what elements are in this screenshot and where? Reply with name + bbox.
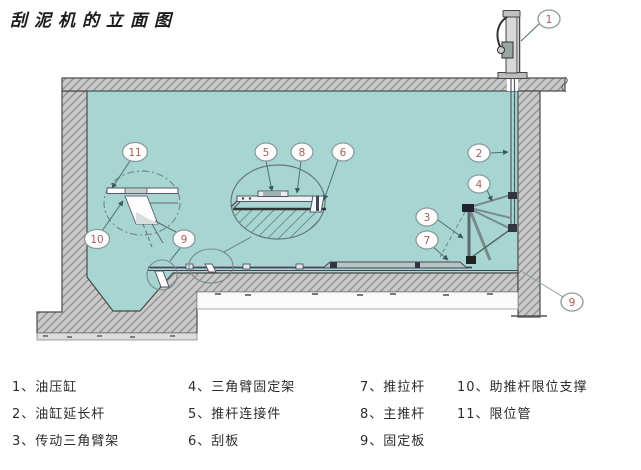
top-slab <box>62 78 565 91</box>
blade-bar <box>316 196 319 211</box>
oil-cylinder <box>497 11 527 92</box>
legend-item-7: 7、推拉杆 <box>360 374 425 401</box>
legend-column-2: 4、三角臂固定架 5、推杆连接件 6、刮板 <box>188 374 295 455</box>
svg-text:8: 8 <box>299 147 306 159</box>
arm-foot <box>466 256 476 264</box>
callout-2: 2 <box>468 144 490 162</box>
legend-column-3: 7、推拉杆 8、主推杆 9、固定板 <box>360 374 425 455</box>
svg-text:3: 3 <box>424 212 431 224</box>
legend-item-3: 3、传动三角臂架 <box>12 428 119 455</box>
rod-clamp <box>330 263 337 269</box>
legend-item-5: 5、推杆连接件 <box>188 401 295 428</box>
limit-tube-sleeve <box>125 188 147 194</box>
callout-11: 11 <box>123 143 148 162</box>
wall-anchor <box>508 192 517 199</box>
legend-item-10: 10、助推杆限位支撑 <box>457 374 588 401</box>
parts-legend: 1、油压缸 2、油缸延长杆 3、传动三角臂架 4、三角臂固定架 5、推杆连接件 … <box>0 374 641 464</box>
legend-item-4: 4、三角臂固定架 <box>188 374 295 401</box>
wall-anchor <box>508 224 517 232</box>
svg-text:4: 4 <box>476 179 483 191</box>
callout-3: 3 <box>416 208 438 226</box>
cylinder-cap <box>503 11 520 18</box>
callout-8: 8 <box>291 143 313 161</box>
elevation-diagram: 1 2 4 3 7 5 8 <box>0 0 641 368</box>
callout-7: 7 <box>416 231 438 249</box>
svg-text:10: 10 <box>90 234 103 246</box>
callout-1: 1 <box>538 10 560 28</box>
legend-item-11: 11、限位管 <box>457 401 588 428</box>
callout-9-right: 9 <box>561 293 583 311</box>
rod-connector-core <box>263 192 281 196</box>
svg-text:1: 1 <box>546 14 553 26</box>
drawing-sheet: 刮泥机的立面图 <box>0 0 641 470</box>
svg-text:5: 5 <box>263 147 270 159</box>
right-wall <box>518 91 540 317</box>
svg-text:9: 9 <box>181 234 188 246</box>
pivot-node <box>462 204 474 212</box>
callout-5: 5 <box>255 143 277 161</box>
svg-text:2: 2 <box>476 148 483 160</box>
legend-item-8: 8、主推杆 <box>360 401 425 428</box>
legend-item-2: 2、油缸延长杆 <box>12 401 119 428</box>
svg-text:7: 7 <box>424 235 431 247</box>
rod-clamp <box>415 263 420 269</box>
legend-column-4: 10、助推杆限位支撑 11、限位管 <box>457 374 588 428</box>
callout-9-left: 9 <box>173 230 195 248</box>
clamp-wheel <box>498 47 505 54</box>
legend-column-1: 1、油压缸 2、油缸延长杆 3、传动三角臂架 <box>12 374 119 455</box>
legend-item-6: 6、刮板 <box>188 428 295 455</box>
svg-text:9: 9 <box>569 297 576 309</box>
push-pull-rod <box>323 262 467 268</box>
svg-text:11: 11 <box>128 147 141 159</box>
svg-text:6: 6 <box>340 147 347 159</box>
callout-10: 10 <box>85 230 110 249</box>
legend-item-9: 9、固定板 <box>360 428 425 455</box>
callout-4: 4 <box>468 175 490 193</box>
callout-6: 6 <box>332 143 354 161</box>
legend-item-1: 1、油压缸 <box>12 374 119 401</box>
